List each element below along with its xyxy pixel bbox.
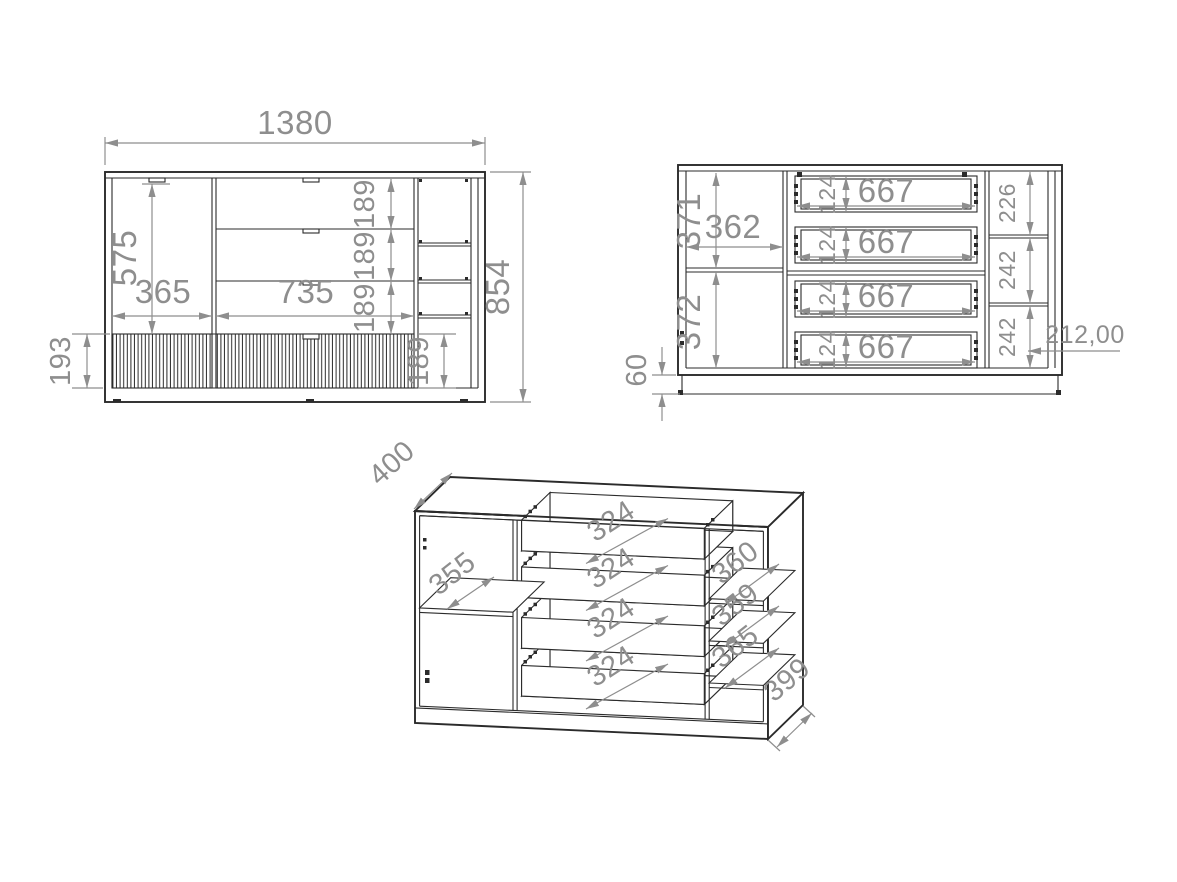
technical-drawing-page: 1380 854 575 365 735 189 189 189 (0, 0, 1177, 882)
dim-drawer2-box-height: 124 (814, 225, 840, 265)
dim-drawer4-box-height: 124 (814, 330, 840, 370)
dim-plinth-height: 60 (621, 353, 653, 386)
dim-door-width: 365 (135, 273, 192, 310)
dim-right-cell3-height: 242 (994, 317, 1020, 357)
dim-right-cell1-height: 226 (994, 183, 1020, 223)
front-view: 1380 854 575 365 735 189 189 189 (45, 104, 531, 402)
dim-total-height: 854 (479, 259, 516, 316)
dim-total-width: 1380 (257, 104, 332, 141)
dim-drawer2-height: 189 (349, 231, 381, 281)
dim-drawer1-height: 189 (349, 179, 381, 229)
dim-right-section-width: 212,00 (1045, 321, 1124, 349)
dim-drawer1-width: 667 (858, 172, 915, 209)
dim-lower-compartment-height: 372 (670, 294, 707, 351)
dim-drawer3-height: 189 (349, 283, 381, 333)
dim-drawer3-box-height: 124 (814, 279, 840, 319)
dim-upper-compartment-height: 371 (670, 193, 707, 250)
fluted-front-panels (112, 334, 414, 388)
dim-drawer2-width: 667 (858, 223, 915, 260)
dim-compartment-width: 362 (705, 208, 762, 245)
internal-view: 371 362 372 60 667 124 667 124 667 124 (621, 165, 1125, 421)
dim-depth: 400 (363, 435, 421, 492)
dim-drawer4-width: 667 (858, 328, 915, 365)
isometric-view: 400 355 324 324 324 324 360 359 365 399 (363, 435, 817, 751)
dim-right-cell2-height: 242 (994, 250, 1020, 290)
dim-drawer3-width: 667 (858, 277, 915, 314)
dim-bottom-drawer-height: 193 (45, 336, 77, 386)
technical-drawing: 1380 854 575 365 735 189 189 189 (0, 0, 1177, 882)
dim-drawer-section-width: 735 (278, 273, 335, 310)
dim-drawer1-box-height: 124 (814, 174, 840, 214)
dim-right-bottom-cell-height: 189 (403, 336, 435, 386)
